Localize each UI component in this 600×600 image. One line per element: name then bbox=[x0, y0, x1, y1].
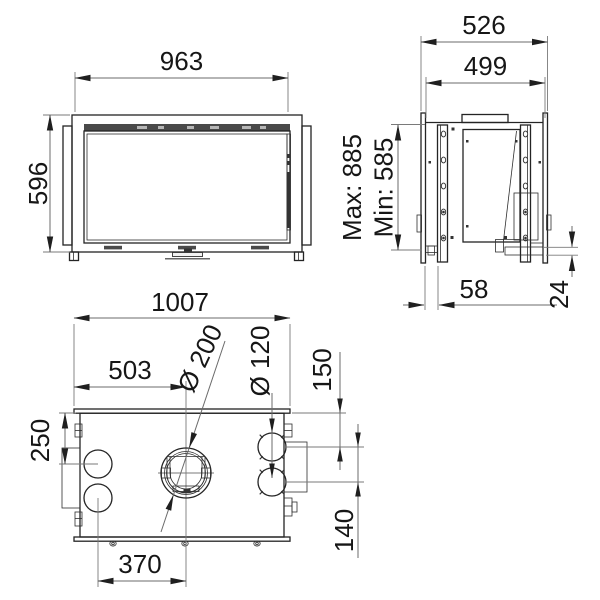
top-overall-width-label: 1007 bbox=[151, 287, 209, 317]
front-width-label: 963 bbox=[160, 46, 203, 76]
side-bottom-lip-dimension: 24 bbox=[544, 226, 578, 309]
side-rear-plate bbox=[543, 113, 548, 263]
side-min-height-label: Min: 585 bbox=[369, 138, 399, 238]
front-left-wing bbox=[63, 126, 72, 245]
side-outer-depth-label: 526 bbox=[462, 10, 505, 40]
front-inner-panel bbox=[84, 131, 290, 243]
side-inner-depth-dimension: 499 bbox=[426, 51, 545, 118]
top-port-to-center-label: 370 bbox=[118, 549, 161, 579]
top-center-offset-label: 503 bbox=[108, 355, 151, 385]
duct-diameter-callout: Ø 200 bbox=[161, 320, 228, 532]
top-body bbox=[80, 413, 284, 537]
top-port-spacing-label: 140 bbox=[329, 509, 359, 552]
top-right-bump bbox=[284, 442, 307, 492]
front-frame bbox=[72, 115, 302, 252]
top-view: 1007 503 250 150 140 bbox=[25, 287, 364, 587]
side-view: 526 499 Max: 885 Min: 585 58 bbox=[337, 10, 578, 310]
top-left-port-offset-label: 250 bbox=[25, 419, 55, 462]
front-view: 963 596 bbox=[23, 46, 311, 261]
side-front-plate bbox=[421, 113, 426, 263]
top-port-spacing-dimension: 140 bbox=[286, 424, 364, 558]
duct-diameter-label: Ø 200 bbox=[171, 320, 228, 397]
side-rail-offset-dimension: 58 bbox=[403, 266, 557, 310]
side-max-height-label: Max: 885 bbox=[337, 134, 367, 241]
top-center-offset-dimension: 503 bbox=[74, 355, 186, 387]
front-width-dimension: 963 bbox=[75, 46, 288, 112]
side-body bbox=[463, 130, 520, 243]
port-diameter-label: Ø 120 bbox=[245, 326, 275, 397]
front-bottom-latch bbox=[165, 249, 210, 259]
side-inner-depth-label: 499 bbox=[464, 51, 507, 81]
top-port-offset-dimension: 150 bbox=[286, 348, 364, 470]
front-height-label: 596 bbox=[23, 162, 53, 205]
side-top-spigot bbox=[462, 115, 508, 123]
side-bottom-lip-label: 24 bbox=[544, 280, 574, 309]
top-port-to-center-dimension: 370 bbox=[98, 498, 186, 587]
technical-drawing-page: 963 596 bbox=[0, 0, 600, 600]
front-right-wing bbox=[302, 126, 311, 245]
side-rail-offset-label: 58 bbox=[460, 274, 489, 304]
side-height-range-dimension: Max: 885 Min: 585 bbox=[337, 125, 425, 251]
top-port-offset-label: 150 bbox=[307, 348, 337, 391]
dimension-drawing: 963 596 bbox=[0, 0, 600, 600]
